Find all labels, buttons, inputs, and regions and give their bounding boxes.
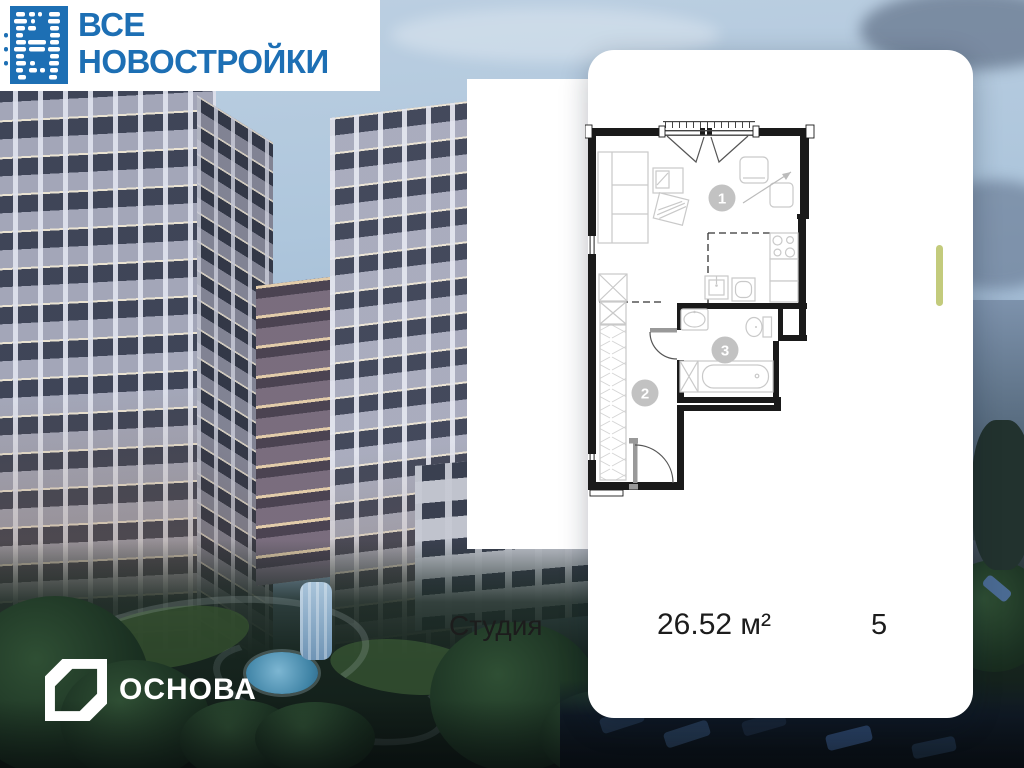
- room-number-1: 1: [718, 191, 726, 208]
- developer-name: ОСНОВА: [119, 673, 257, 707]
- screen: ОСНОВА: [0, 0, 1024, 768]
- brand-logo-text[interactable]: ВСЕ НОВОСТРОЙКИ: [78, 6, 378, 80]
- listing-panel-fragment: [467, 79, 588, 549]
- brand-line1: ВСЕ: [78, 6, 378, 43]
- floor-value[interactable]: 5: [871, 609, 887, 642]
- developer-logo: ОСНОВА: [45, 655, 257, 725]
- scroll-indicator[interactable]: [936, 245, 943, 306]
- playground-slide-tower: [300, 582, 332, 660]
- developer-logo-icon: [45, 655, 107, 725]
- plan-furniture: [598, 152, 798, 480]
- room-number-2: 2: [641, 386, 649, 403]
- brand-line2: НОВОСТРОЙКИ: [78, 43, 378, 80]
- studio-type-label[interactable]: Студия: [449, 610, 543, 642]
- room-number-3: 3: [721, 343, 729, 360]
- floorplan-card[interactable]: 1 2 3: [588, 50, 973, 718]
- area-value[interactable]: 26.52 м²: [657, 608, 771, 642]
- brand-logo-icon[interactable]: [4, 4, 70, 86]
- tree-strip: [972, 420, 1024, 570]
- floorplan-svg: 1 2 3: [585, 115, 825, 505]
